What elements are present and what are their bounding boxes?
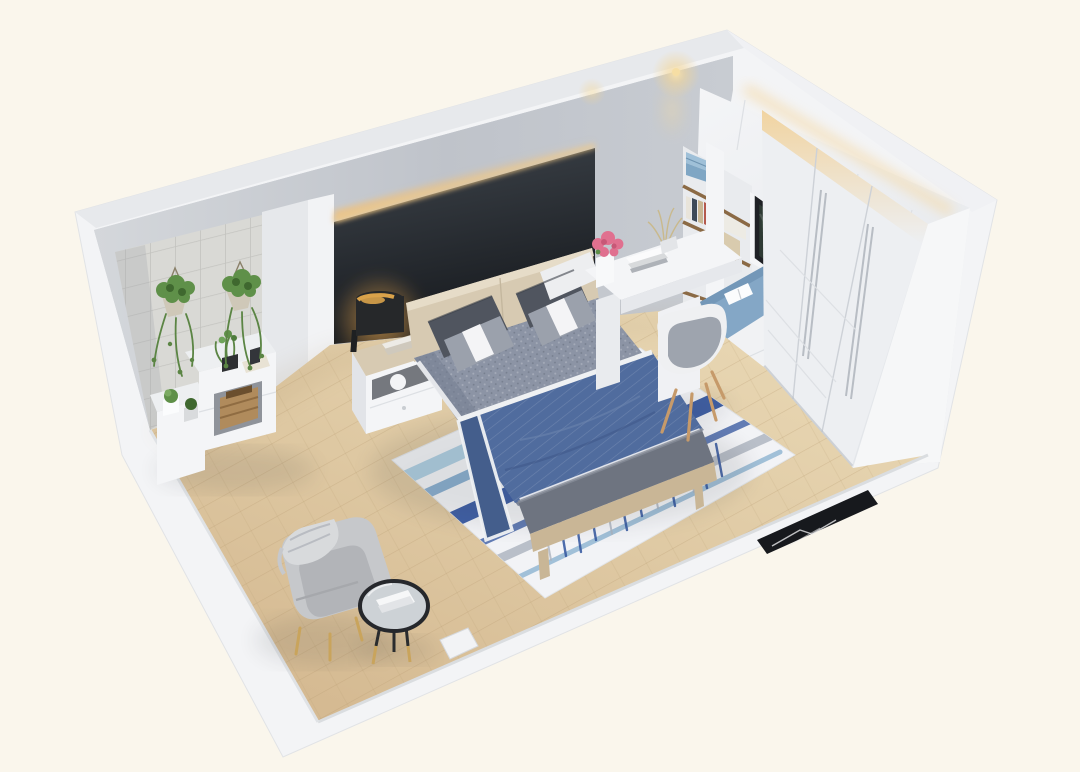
jar: [250, 347, 260, 365]
bedroom-render: [0, 0, 1080, 772]
drawer-knob: [402, 406, 406, 410]
bench-leg-left: [538, 548, 550, 580]
shelf-divider: [706, 142, 724, 312]
scene-canvas: [0, 0, 1080, 772]
desk-left-panel: [596, 292, 620, 390]
spot-light-cone: [656, 80, 688, 140]
sphere-ornament: [390, 374, 406, 390]
